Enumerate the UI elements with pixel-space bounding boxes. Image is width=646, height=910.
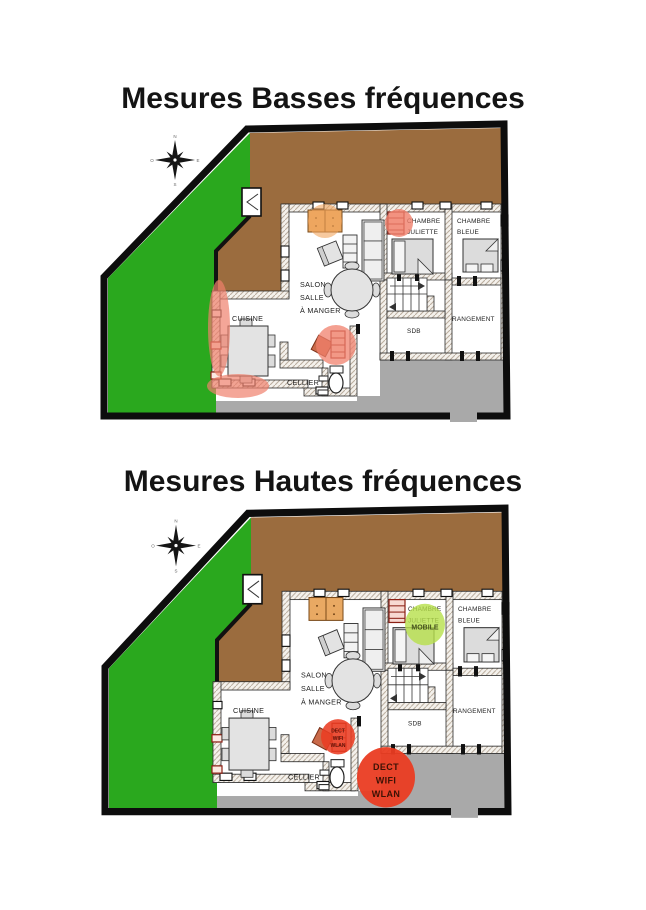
svg-text:WLAN: WLAN: [331, 743, 346, 749]
svg-text:DECT: DECT: [373, 762, 399, 772]
page: Mesures Basses fréquences: [0, 0, 646, 910]
hotspot-radiator-juliette: [385, 209, 413, 237]
floor-plan-hautes: MOBILE DECT WIFI WLAN DECT WIFI WLAN: [101, 504, 518, 822]
svg-text:WIFI: WIFI: [376, 775, 397, 785]
title-basses-frequences: Mesures Basses fréquences: [0, 82, 646, 116]
hotspot-desk: [316, 325, 356, 365]
marker-mobile: MOBILE: [405, 604, 445, 646]
svg-text:WIFI: WIFI: [333, 736, 344, 742]
title-hautes-frequences: Mesures Hautes fréquences: [0, 465, 646, 499]
floor-plan-basses: SALON SALLE À MANGER CUISINE CELLIER CHA…: [100, 120, 517, 426]
hotspot-kitchen-wall: [208, 280, 230, 376]
marker-dect-small: DECT WIFI WLAN: [321, 719, 355, 754]
marker-mobile-label: MOBILE: [411, 624, 438, 632]
marker-dect-large: DECT WIFI WLAN: [357, 747, 415, 807]
svg-text:DECT: DECT: [331, 729, 345, 735]
hotspot-loveseat: [308, 204, 342, 238]
hotspot-kitchen-corner: [207, 374, 269, 398]
svg-text:WLAN: WLAN: [372, 789, 401, 799]
